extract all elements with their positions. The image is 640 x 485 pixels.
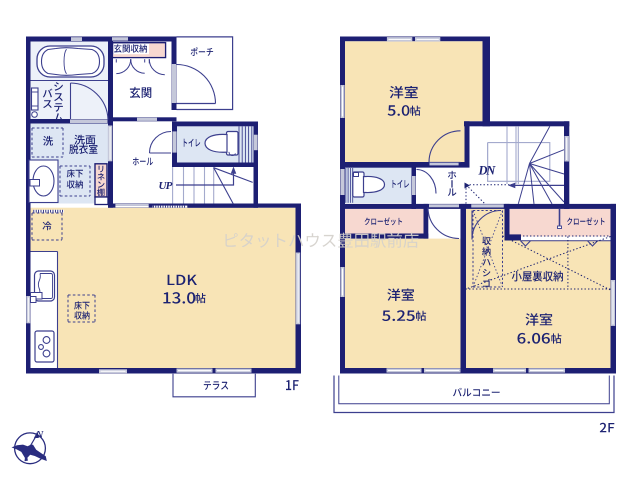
svg-text:DN: DN: [477, 163, 496, 177]
svg-text:UP: UP: [158, 180, 172, 192]
svg-text:N: N: [35, 429, 44, 441]
